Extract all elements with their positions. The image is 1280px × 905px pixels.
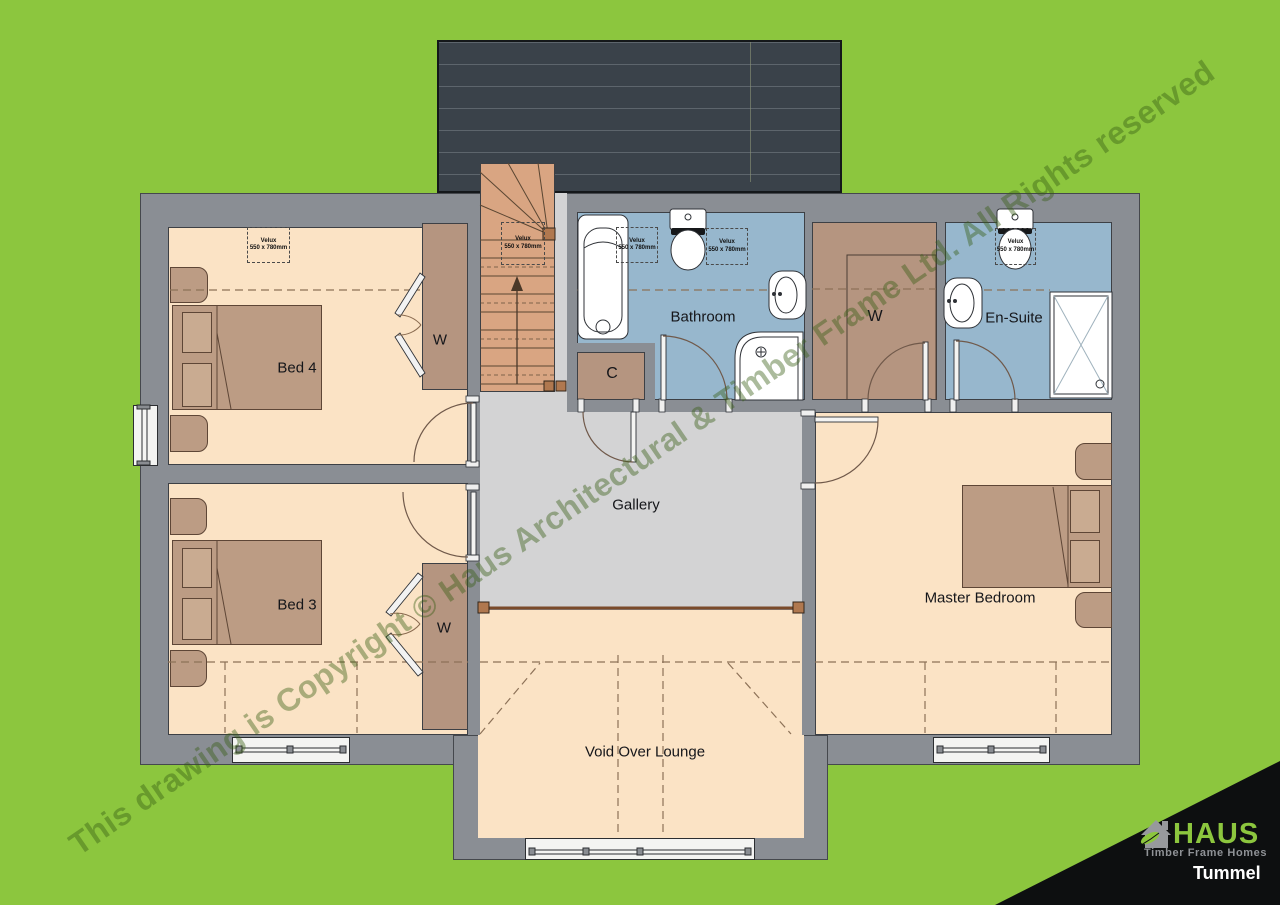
bed4-wardrobe-label: W [433,332,447,349]
master-pillow-2 [1070,540,1100,583]
void-floor-upper [480,610,802,735]
bed4-pillow-2 [182,363,212,407]
bed3-pillow-1 [182,548,212,588]
ensuite-label: En-Suite [985,310,1043,327]
velux-annotation-bed4: Velux550 x 780mm [247,227,290,263]
master-bedroom-label: Master Bedroom [925,590,1036,607]
roof-seam [750,42,751,182]
velux-annotation-bathroom-1: Velux550 x 780mm [616,227,658,263]
cupboard-label: C [606,365,618,383]
bed3-wardrobe-label: W [437,620,451,637]
velux-annotation-bathroom-2: Velux550 x 780mm [706,228,748,265]
stair-landing-strip [555,193,567,393]
bed3-side-table-bottom [170,650,207,687]
velux-annotation-stairs: Velux550 x 780mm [501,222,545,265]
master-pillow-1 [1070,490,1100,533]
plan-name: Tummel [1193,863,1261,884]
bed4-side-table-top [170,267,208,303]
staircase [480,163,555,392]
bed3-pillow-2 [182,598,212,640]
haus-house-icon [1139,820,1171,848]
bed4-side-window [133,405,158,466]
lounge-bay-window [525,838,755,860]
master-side-table-top [1075,443,1112,480]
void-over-lounge-label: Void Over Lounge [585,744,705,761]
master-side-table-bottom [1075,592,1112,628]
bed4-label: Bed 4 [277,360,316,377]
brand-tagline: Timber Frame Homes [1144,847,1267,859]
gallery-label: Gallery [612,497,660,514]
bed4-wardrobe [422,223,468,390]
floor-plan-canvas: Velux550 x 780mm Velux550 x 780mm Velux5… [0,0,1280,905]
bed3-side-table-top [170,498,207,535]
bed4-side-table-bottom [170,415,208,452]
master-window [933,737,1050,763]
leaf-icon [1139,829,1161,846]
bed3-label: Bed 3 [277,597,316,614]
bed4-pillow-1 [182,312,212,353]
bathroom-label: Bathroom [670,309,735,326]
